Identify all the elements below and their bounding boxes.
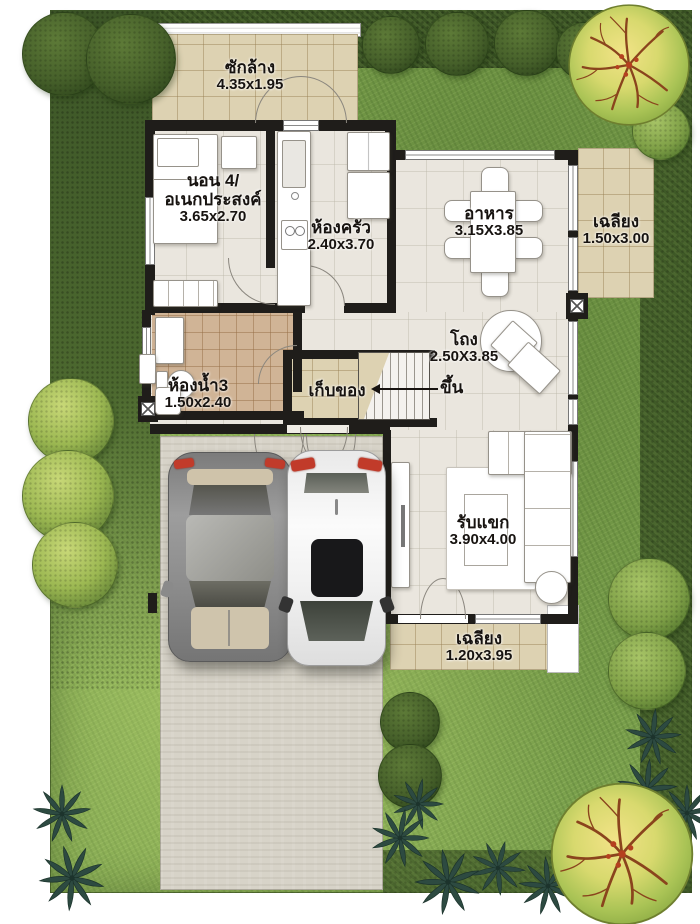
fridge (347, 132, 390, 171)
room-name: นอน 4/ (138, 171, 288, 190)
car-suv (287, 450, 386, 666)
nightstand (221, 136, 257, 169)
porch-right-label: เฉลียง 1.50x3.00 (541, 212, 691, 248)
rear-window (304, 473, 369, 493)
bush (494, 10, 560, 76)
window (569, 322, 577, 394)
windshield (189, 581, 271, 607)
storage-label: เก็บของ (262, 381, 412, 400)
faucet-dot (291, 192, 299, 200)
dresser (153, 280, 218, 307)
tree (86, 14, 176, 104)
kitchen-cabinet (347, 172, 390, 219)
room-dim: 4.35x1.95 (175, 77, 325, 94)
antenna (335, 499, 338, 515)
room-dim: 1.20x3.95 (404, 648, 554, 665)
yellow-tree (566, 2, 692, 128)
room-name: ห้องครัว (266, 218, 416, 237)
taillight (290, 457, 316, 472)
porch-bottom-label: เฉลียง 1.20x3.95 (404, 629, 554, 665)
window (406, 151, 554, 159)
sofa-right (524, 431, 571, 583)
room-dim: 2.50X3.85 (389, 349, 539, 366)
sunroof (311, 539, 363, 597)
bush (425, 12, 489, 76)
room-dim: 3.90x4.00 (408, 532, 558, 549)
bathroom3-label: ห้องน้ำ3 1.50x2.40 (123, 376, 273, 412)
tv (401, 505, 405, 547)
room-dim: 1.50x2.40 (123, 395, 273, 412)
room-dim: 1.50x3.00 (541, 231, 691, 248)
tree (32, 522, 118, 608)
taillight (264, 458, 285, 470)
yellow-tree (548, 780, 696, 924)
dining-chair (514, 237, 543, 259)
stairs-up-label: ขึ้น (440, 378, 480, 397)
room-name: อเนกประสงค์ (138, 190, 288, 209)
room-name: ห้องน้ำ3 (123, 376, 273, 395)
seat-line (228, 610, 230, 646)
laundry-label: ซักล้าง 4.35x1.95 (175, 58, 325, 94)
pillow (157, 138, 199, 167)
room-name: โถง (389, 330, 539, 349)
window (476, 615, 540, 623)
palm-plant (36, 842, 108, 914)
floor-plan-canvas: จอดรถ (0, 0, 700, 924)
room-name: เฉลียง (541, 212, 691, 231)
bush (362, 16, 420, 74)
taillight (357, 457, 383, 472)
room-name: ซักล้าง (175, 58, 325, 77)
room-name: รับแขก (408, 513, 558, 532)
room-dim: 2.40x3.70 (266, 237, 416, 254)
side-table (535, 571, 568, 604)
dining-chair (481, 167, 509, 194)
tree (608, 632, 686, 710)
bath-vanity (155, 317, 184, 364)
living-label: รับแขก 3.90x4.00 (408, 513, 558, 549)
bush (380, 692, 440, 752)
window (569, 400, 577, 424)
dining-chair (444, 237, 473, 259)
room-name: เฉลียง (404, 629, 554, 648)
car-sedan (168, 452, 292, 662)
rear-deck (187, 469, 273, 485)
front-interior (191, 607, 269, 649)
windshield (300, 601, 373, 641)
dining-chair (481, 270, 509, 297)
kitchen-label: ห้องครัว 2.40x3.70 (266, 218, 416, 254)
window-post (566, 293, 588, 319)
car-roof (186, 515, 274, 581)
rear-window (189, 485, 271, 515)
palm-plant (30, 782, 94, 846)
hall-label: โถง 2.50X3.85 (389, 330, 539, 366)
tree (608, 558, 690, 640)
wall (344, 303, 396, 313)
taillight (173, 458, 194, 470)
